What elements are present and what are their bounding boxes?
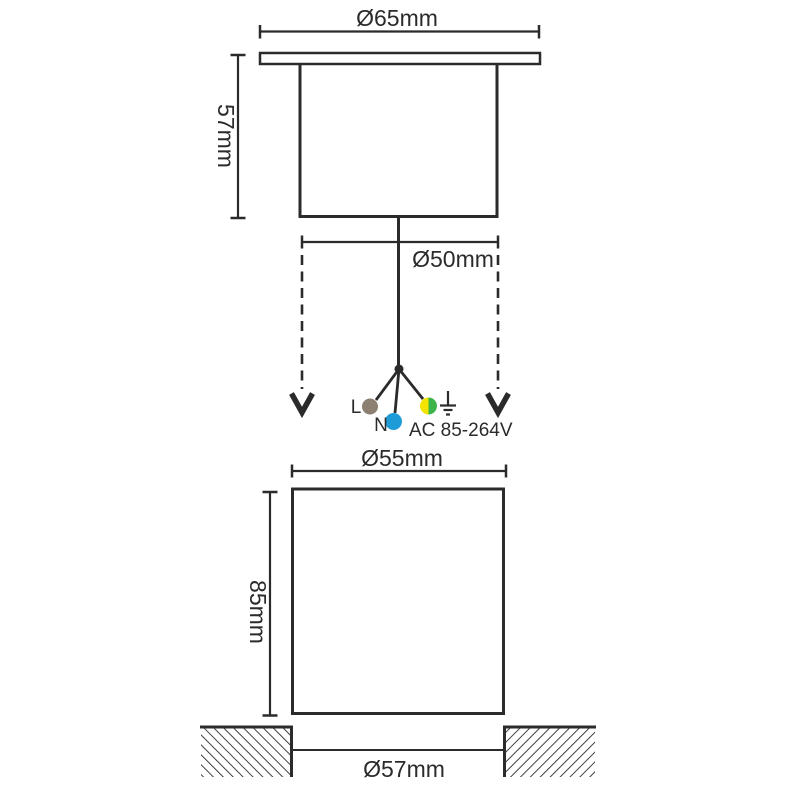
mounting-surface-left xyxy=(200,726,293,778)
earth-ground-icon xyxy=(440,391,456,415)
drawing-root: Ø65mm 57mm Ø50mm xyxy=(200,5,596,782)
live-label: L xyxy=(351,397,362,418)
dimension-body-width: Ø55mm xyxy=(292,445,506,478)
down-arrow-icon xyxy=(488,394,509,413)
luminaire-dimension-drawing: Ø65mm 57mm Ø50mm xyxy=(0,0,800,800)
down-arrow-icon xyxy=(292,394,313,413)
dimension-flange-diameter: Ø65mm xyxy=(260,5,539,39)
fixture-housing xyxy=(293,489,504,714)
dimension-housing-height: 85mm xyxy=(245,492,278,716)
insertion-direction-right xyxy=(488,255,509,413)
fixture-flange xyxy=(260,53,540,64)
body-diameter-label: Ø50mm xyxy=(412,246,494,272)
hatch-fill xyxy=(201,727,292,777)
insertion-direction-left xyxy=(292,255,313,413)
earth-wire-end-green xyxy=(429,398,438,415)
cutout-diameter-label: Ø57mm xyxy=(363,756,445,782)
dimension-body-height: 57mm xyxy=(213,55,246,218)
earth-wire-end-yellow xyxy=(420,398,429,415)
dimension-cutout-diameter: Ø57mm xyxy=(292,750,504,782)
bottom-view: Ø55mm 85mm xyxy=(200,445,596,782)
neutral-label: N xyxy=(374,415,388,436)
hatch-fill xyxy=(505,727,596,777)
body-height-label: 57mm xyxy=(213,104,239,168)
top-view: Ø65mm 57mm Ø50mm xyxy=(213,5,540,413)
flange-diameter-label: Ø65mm xyxy=(356,5,438,31)
technical-drawing-canvas: Ø65mm 57mm Ø50mm xyxy=(0,0,800,800)
body-width-label: Ø55mm xyxy=(361,445,443,471)
housing-height-label: 85mm xyxy=(245,580,271,644)
live-wire-end xyxy=(362,399,378,415)
earth-wire xyxy=(399,369,423,399)
mounting-surface-right xyxy=(503,726,596,778)
voltage-label: AC 85-264V xyxy=(409,420,513,441)
fixture-body xyxy=(300,63,497,217)
